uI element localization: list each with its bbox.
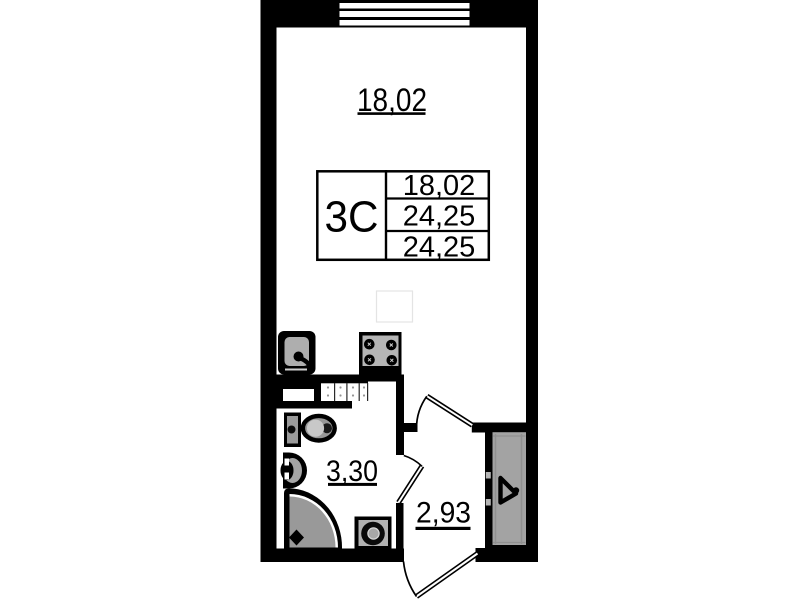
svg-text:24,25: 24,25 [403, 231, 476, 263]
svg-text:3С: 3С [325, 193, 379, 242]
svg-text:24,25: 24,25 [403, 200, 476, 232]
svg-text:2,93: 2,93 [416, 497, 471, 530]
svg-text:18,02: 18,02 [403, 170, 476, 202]
